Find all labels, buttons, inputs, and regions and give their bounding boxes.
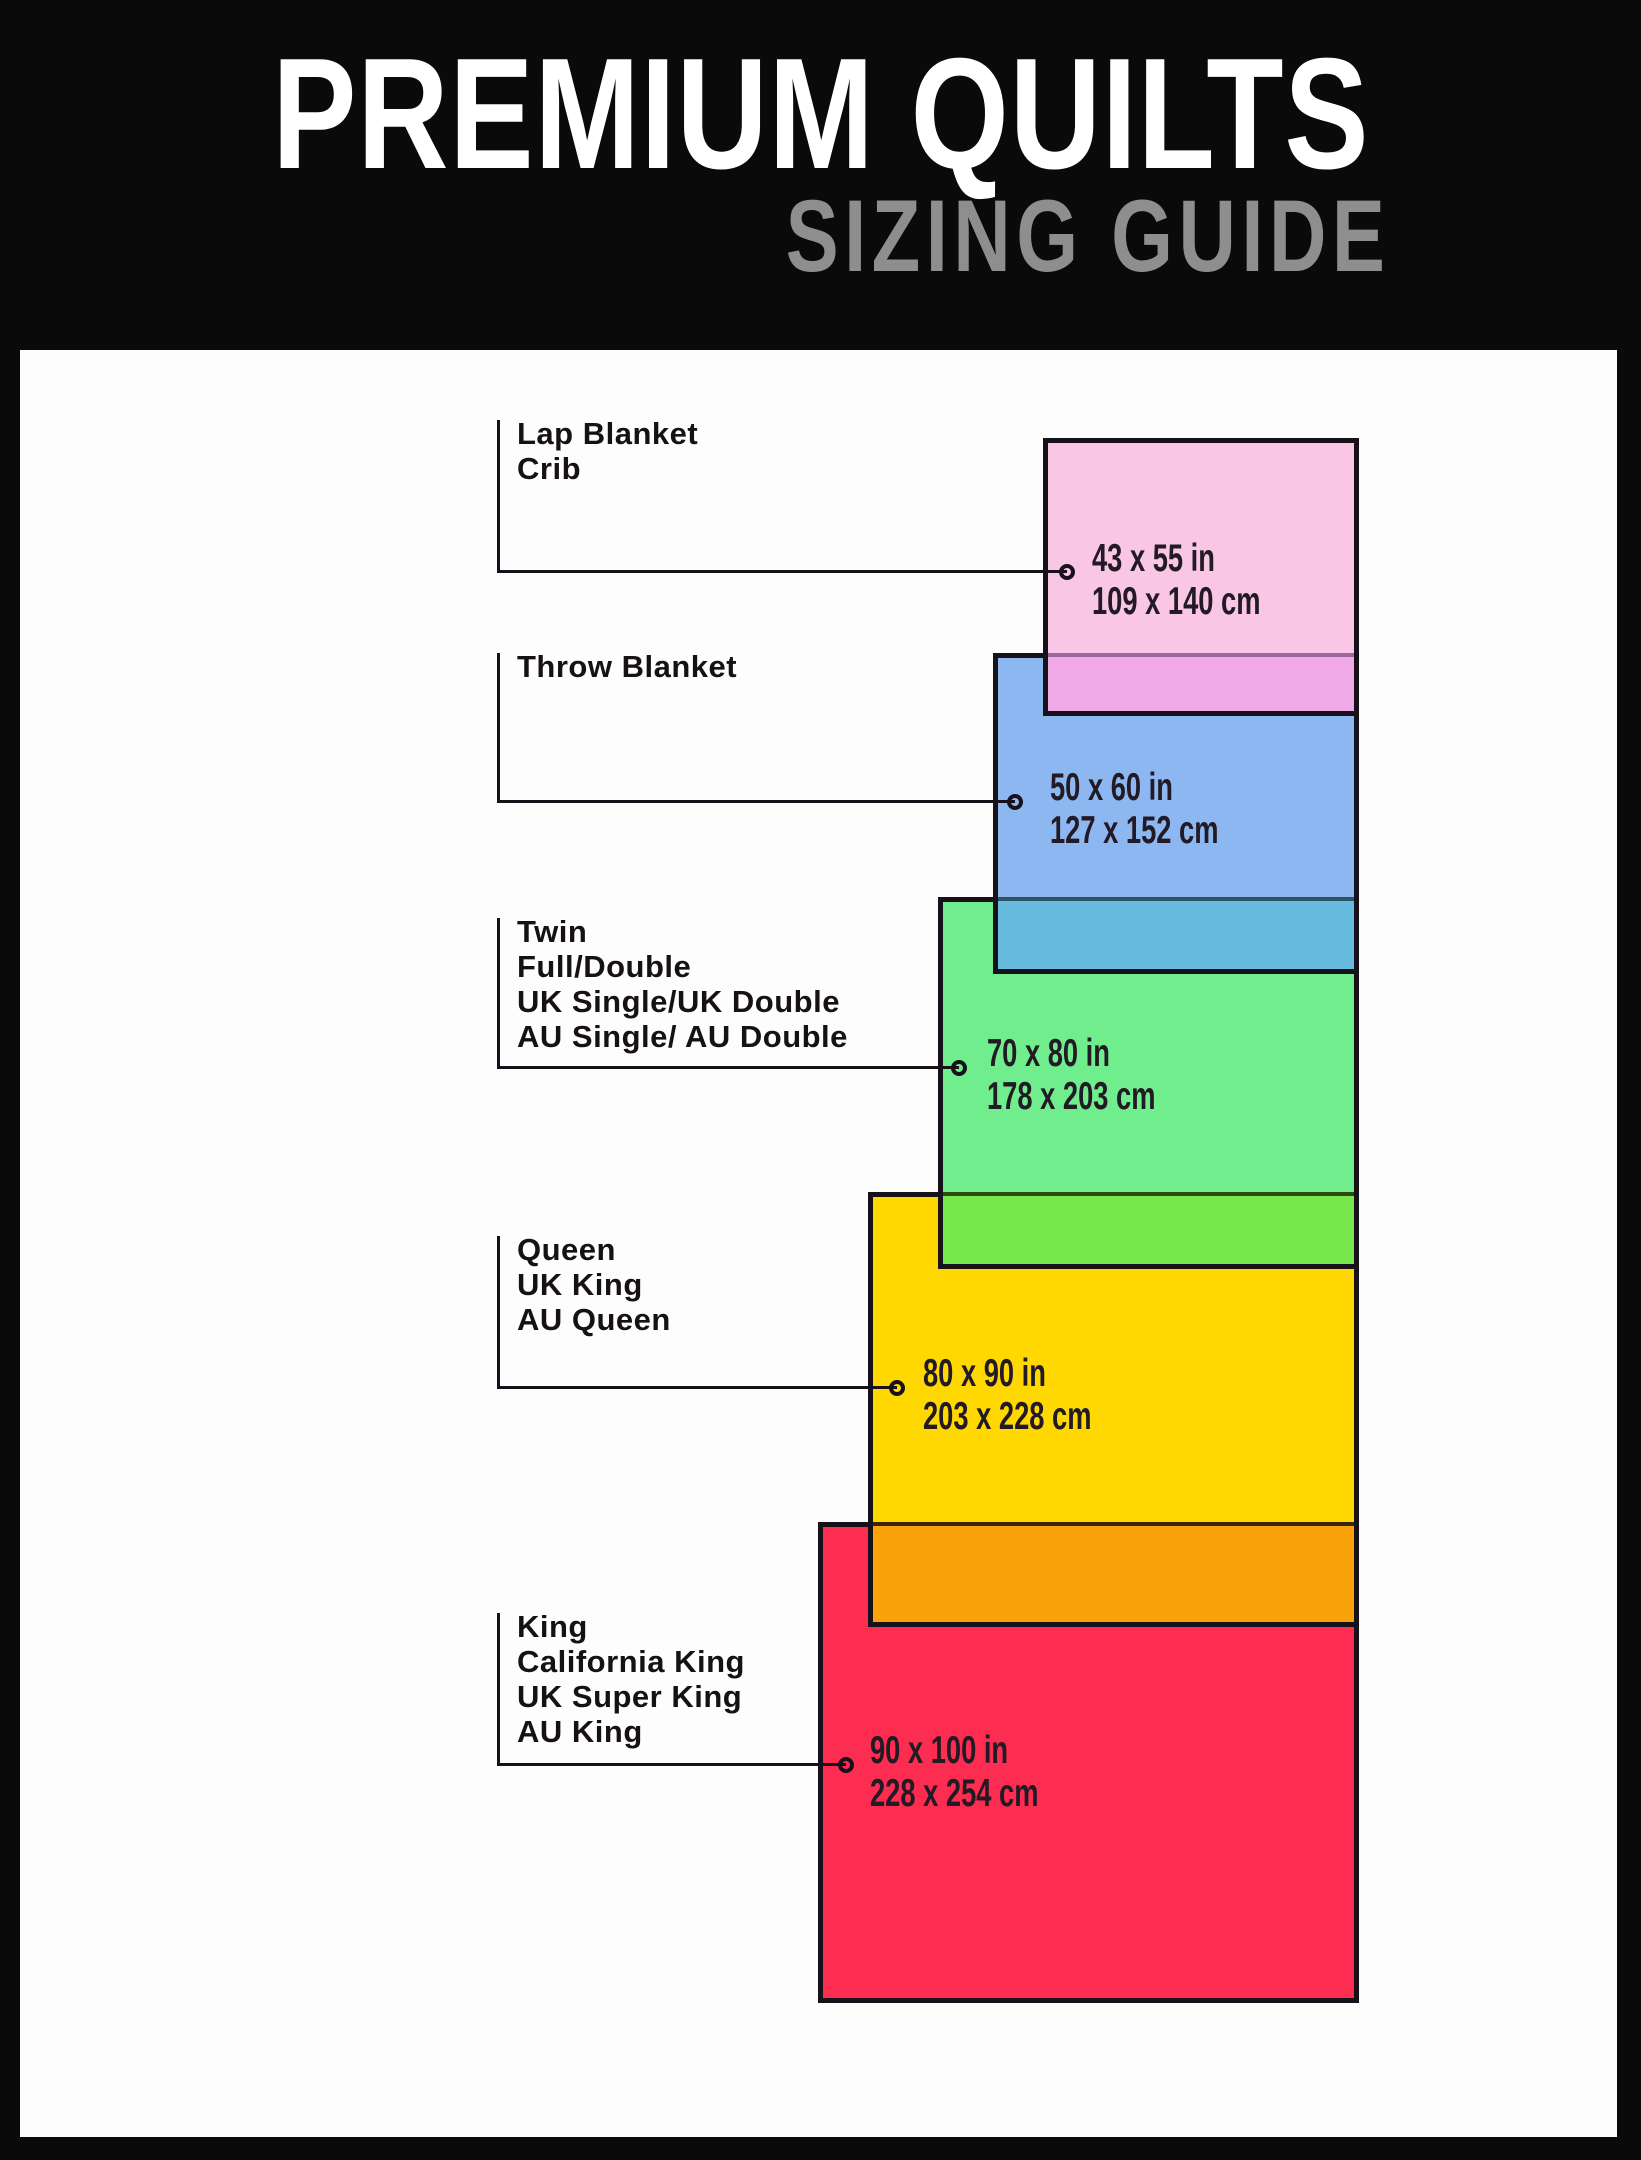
overlap-band-throw-twin bbox=[998, 901, 1354, 969]
leader-hline-king bbox=[497, 1763, 846, 1766]
poster-title: PREMIUM QUILTS bbox=[0, 35, 1641, 193]
dimension-cm: 127 x 152 cm bbox=[1050, 809, 1218, 852]
dimensions-throw: 50 x 60 in 127 x 152 cm bbox=[1050, 766, 1218, 852]
leader-dot-queen bbox=[889, 1380, 905, 1396]
leader-dot-twin bbox=[951, 1060, 967, 1076]
leader-dot-throw bbox=[1007, 794, 1023, 810]
dimensions-queen: 80 x 90 in 203 x 228 cm bbox=[923, 1352, 1091, 1438]
label-line: Queen bbox=[517, 1232, 671, 1267]
dimension-cm: 203 x 228 cm bbox=[923, 1395, 1091, 1438]
dimension-inches: 43 x 55 in bbox=[1092, 537, 1260, 580]
label-line: UK Single/UK Double bbox=[517, 984, 848, 1019]
leader-vline-queen bbox=[497, 1236, 500, 1389]
label-line: Full/Double bbox=[517, 949, 848, 984]
label-line: AU Queen bbox=[517, 1302, 671, 1337]
label-king: King California King UK Super King AU Ki… bbox=[517, 1609, 745, 1749]
label-queen: Queen UK King AU Queen bbox=[517, 1232, 671, 1337]
label-line: AU Single/ AU Double bbox=[517, 1019, 848, 1054]
dimensions-lap-crib: 43 x 55 in 109 x 140 cm bbox=[1092, 537, 1260, 623]
leader-dot-lap bbox=[1059, 564, 1075, 580]
label-line: Twin bbox=[517, 914, 848, 949]
leader-hline-queen bbox=[497, 1386, 897, 1389]
poster-title-text: PREMIUM QUILTS bbox=[272, 35, 1369, 193]
label-line: UK King bbox=[517, 1267, 671, 1302]
leader-vline-lap bbox=[497, 420, 500, 573]
poster-subtitle: SIZING GUIDE bbox=[785, 185, 1390, 287]
label-line: Crib bbox=[517, 451, 698, 486]
leader-hline-lap bbox=[497, 570, 1067, 573]
overlap-band-twin-queen bbox=[943, 1196, 1354, 1264]
label-line: California King bbox=[517, 1644, 745, 1679]
label-line: Lap Blanket bbox=[517, 416, 698, 451]
leader-vline-king bbox=[497, 1613, 500, 1766]
leader-vline-twin bbox=[497, 918, 500, 1069]
leader-hline-throw bbox=[497, 800, 1015, 803]
overlap-band-lap-throw bbox=[1048, 657, 1354, 711]
label-line: Throw Blanket bbox=[517, 649, 737, 684]
dimension-inches: 50 x 60 in bbox=[1050, 766, 1218, 809]
overlap-band-queen-king bbox=[873, 1526, 1354, 1622]
label-line: UK Super King bbox=[517, 1679, 745, 1714]
label-line: AU King bbox=[517, 1714, 745, 1749]
dimension-inches: 90 x 100 in bbox=[870, 1729, 1038, 1772]
label-line: King bbox=[517, 1609, 745, 1644]
leader-vline-throw bbox=[497, 653, 500, 803]
dimension-cm: 178 x 203 cm bbox=[987, 1075, 1155, 1118]
label-throw: Throw Blanket bbox=[517, 649, 737, 684]
leader-hline-twin bbox=[497, 1066, 959, 1069]
dimensions-king: 90 x 100 in 228 x 254 cm bbox=[870, 1729, 1038, 1815]
dimension-cm: 228 x 254 cm bbox=[870, 1772, 1038, 1815]
dimension-inches: 70 x 80 in bbox=[987, 1032, 1155, 1075]
dimension-inches: 80 x 90 in bbox=[923, 1352, 1091, 1395]
label-twin: Twin Full/Double UK Single/UK Double AU … bbox=[517, 914, 848, 1054]
sizing-guide-poster: PREMIUM QUILTS SIZING GUIDE Lap Blanket … bbox=[0, 0, 1641, 2160]
leader-dot-king bbox=[838, 1757, 854, 1773]
dimensions-twin: 70 x 80 in 178 x 203 cm bbox=[987, 1032, 1155, 1118]
dimension-cm: 109 x 140 cm bbox=[1092, 580, 1260, 623]
label-lap-crib: Lap Blanket Crib bbox=[517, 416, 698, 486]
